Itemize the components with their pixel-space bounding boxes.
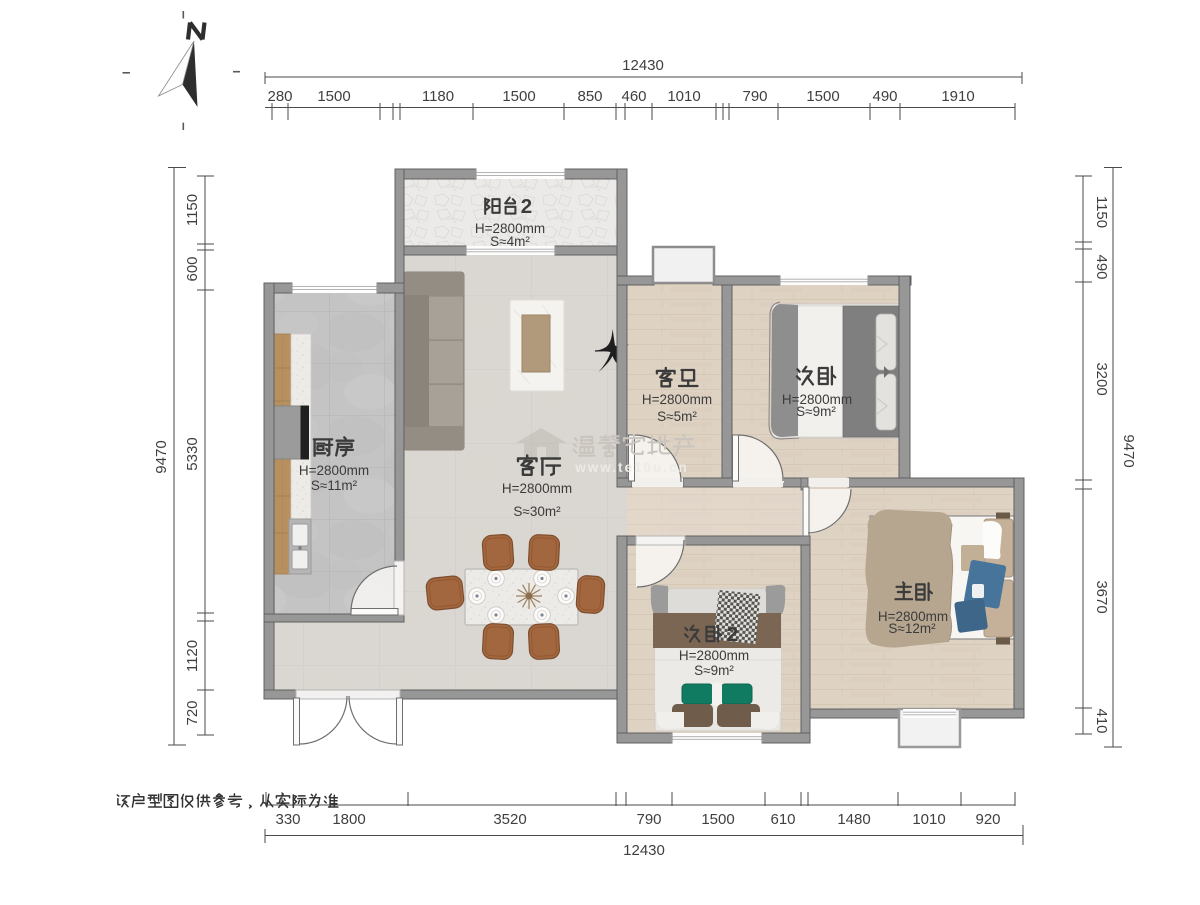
- svg-text:330: 330: [275, 811, 300, 828]
- svg-text:3670: 3670: [1093, 580, 1110, 613]
- svg-text:S≈4m²: S≈4m²: [490, 234, 530, 249]
- svg-text:3200: 3200: [1093, 362, 1110, 395]
- svg-text:850: 850: [577, 88, 602, 105]
- svg-text:1500: 1500: [502, 88, 535, 105]
- svg-text:1800: 1800: [332, 811, 365, 828]
- svg-text:490: 490: [1093, 254, 1110, 279]
- svg-text:1500: 1500: [317, 88, 350, 105]
- svg-text:280: 280: [267, 88, 292, 105]
- svg-text:2: 2: [727, 623, 738, 646]
- svg-text:5330: 5330: [184, 437, 201, 470]
- svg-text:1480: 1480: [837, 811, 870, 828]
- svg-text:S≈12m²: S≈12m²: [888, 621, 936, 636]
- svg-text:12430: 12430: [622, 57, 664, 74]
- svg-text:410: 410: [1093, 708, 1110, 733]
- svg-text:1150: 1150: [184, 194, 201, 226]
- svg-text:790: 790: [636, 811, 661, 828]
- svg-text:S≈9m²: S≈9m²: [796, 404, 836, 419]
- svg-text:1010: 1010: [912, 811, 945, 828]
- svg-text:790: 790: [742, 88, 767, 105]
- svg-text:9470: 9470: [153, 440, 170, 473]
- svg-text:H=2800mm: H=2800mm: [642, 392, 712, 407]
- svg-text:1180: 1180: [422, 88, 454, 105]
- svg-text:460: 460: [621, 88, 646, 105]
- svg-text:3520: 3520: [493, 811, 526, 828]
- svg-text:490: 490: [872, 88, 897, 105]
- svg-text:H=2800mm: H=2800mm: [679, 648, 749, 663]
- svg-text:www.te10u.cn: www.te10u.cn: [574, 460, 689, 475]
- svg-text:1500: 1500: [806, 88, 839, 105]
- svg-text:H=2800mm: H=2800mm: [502, 481, 572, 496]
- svg-text:1150: 1150: [1093, 196, 1110, 228]
- svg-text:720: 720: [184, 700, 201, 725]
- svg-text:1500: 1500: [701, 811, 734, 828]
- svg-text:1120: 1120: [184, 640, 201, 672]
- svg-text:H=2800mm: H=2800mm: [299, 463, 369, 478]
- svg-text:600: 600: [184, 256, 201, 281]
- svg-text:S≈11m²: S≈11m²: [311, 478, 358, 493]
- svg-text:12430: 12430: [623, 842, 665, 859]
- svg-text:1010: 1010: [667, 88, 700, 105]
- svg-text:S≈5m²: S≈5m²: [657, 409, 697, 424]
- svg-text:9470: 9470: [1120, 434, 1137, 467]
- svg-text:1910: 1910: [941, 88, 974, 105]
- svg-text:S≈30m²: S≈30m²: [513, 504, 561, 519]
- svg-text:920: 920: [975, 811, 1000, 828]
- svg-text:2: 2: [521, 195, 532, 218]
- svg-text:S≈9m²: S≈9m²: [694, 663, 734, 678]
- svg-text:610: 610: [770, 811, 795, 828]
